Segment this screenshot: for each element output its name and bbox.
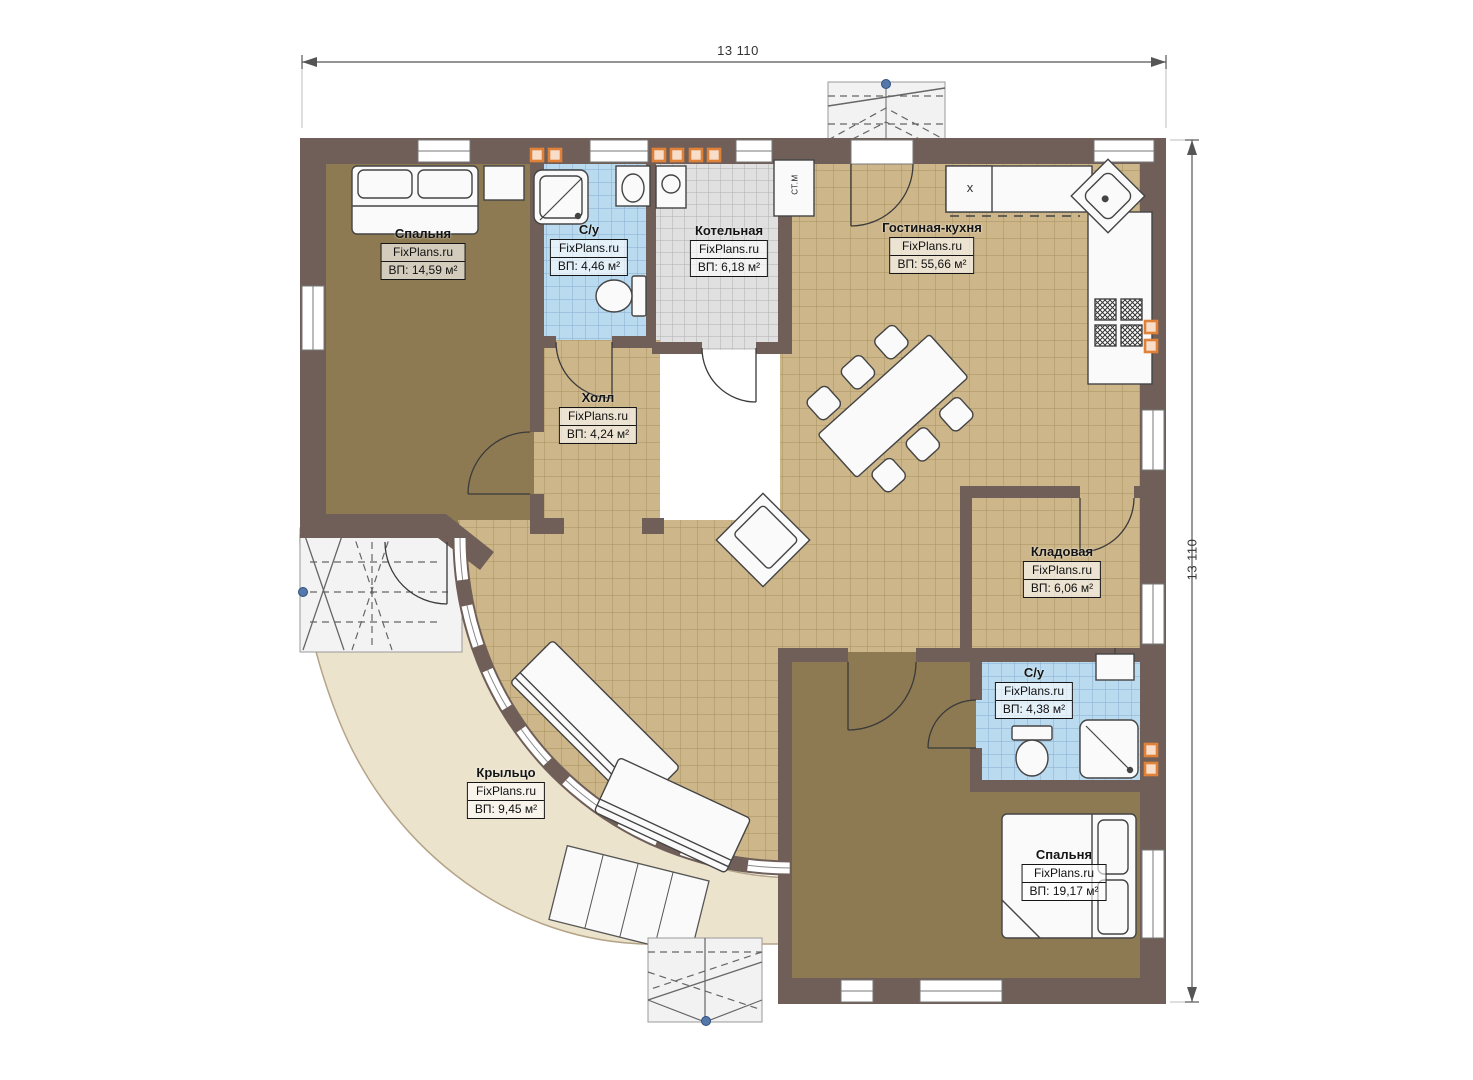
roof-gable-left [299,528,463,652]
dimension-right [1170,140,1199,1002]
dimension-top [302,55,1166,128]
shower-icon [534,170,588,224]
roof-gable-bottom [648,938,762,1026]
room-floor-hall [534,340,660,532]
floor-plan-page: 13 110 13 110 СТ.М x Спальня FixPlans.ru… [0,0,1473,1080]
washing-machine [774,160,814,216]
bed2-icon [1002,814,1136,938]
sink-icon [616,166,650,206]
floor-plan-drawing [0,0,1473,1080]
boiler-icon [656,166,686,208]
shower2-icon [1080,720,1138,778]
